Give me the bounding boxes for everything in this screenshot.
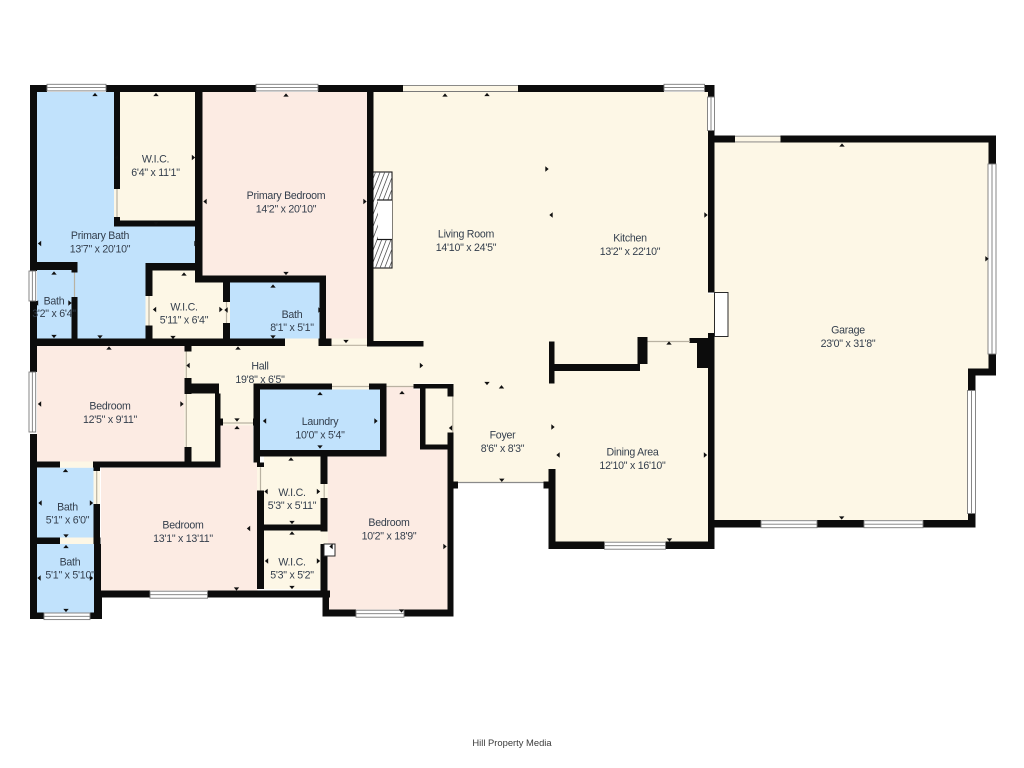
svg-text:13'7" x 20'10": 13'7" x 20'10"	[70, 244, 131, 256]
svg-text:3'2" x 6'4": 3'2" x 6'4"	[32, 308, 76, 320]
svg-text:Bath: Bath	[282, 309, 303, 321]
svg-text:Kitchen: Kitchen	[613, 233, 647, 245]
svg-text:8'6" x 8'3": 8'6" x 8'3"	[481, 443, 525, 455]
svg-text:Bedroom: Bedroom	[162, 520, 204, 532]
svg-text:W.I.C.: W.I.C.	[278, 487, 305, 499]
svg-text:5'1" x 5'10": 5'1" x 5'10"	[45, 570, 95, 582]
svg-text:23'0" x 31'8": 23'0" x 31'8"	[821, 338, 876, 350]
svg-text:Laundry: Laundry	[302, 416, 339, 428]
svg-text:5'11" x 6'4": 5'11" x 6'4"	[160, 315, 209, 327]
svg-text:Primary Bath: Primary Bath	[71, 230, 130, 242]
svg-text:Hill Property Media: Hill Property Media	[472, 737, 552, 748]
svg-text:W.I.C.: W.I.C.	[142, 154, 169, 166]
svg-text:Hall: Hall	[251, 361, 268, 373]
svg-text:8'1" x 5'1": 8'1" x 5'1"	[270, 322, 314, 334]
svg-text:14'10" x 24'5": 14'10" x 24'5"	[436, 242, 497, 254]
svg-text:6'4" x 11'1": 6'4" x 11'1"	[131, 167, 180, 179]
svg-text:W.I.C.: W.I.C.	[170, 302, 197, 314]
svg-text:5'3" x 5'11": 5'3" x 5'11"	[268, 500, 317, 512]
svg-text:W.I.C.: W.I.C.	[278, 557, 305, 569]
svg-text:Primary Bedroom: Primary Bedroom	[247, 190, 326, 202]
svg-text:5'1" x 6'0": 5'1" x 6'0"	[46, 515, 90, 527]
svg-text:Dining Area: Dining Area	[606, 447, 658, 459]
svg-text:5'3" x 5'2": 5'3" x 5'2"	[270, 570, 314, 582]
svg-text:10'0" x 5'4": 10'0" x 5'4"	[295, 430, 345, 442]
svg-text:13'2" x 22'10": 13'2" x 22'10"	[600, 246, 661, 258]
svg-text:12'5" x 9'11": 12'5" x 9'11"	[83, 414, 138, 426]
svg-text:Bath: Bath	[57, 502, 78, 514]
svg-text:Bedroom: Bedroom	[89, 401, 131, 413]
svg-text:14'2" x 20'10": 14'2" x 20'10"	[256, 204, 317, 216]
svg-text:12'10" x 16'10": 12'10" x 16'10"	[599, 460, 666, 472]
svg-text:Bath: Bath	[60, 557, 81, 569]
svg-text:19'8" x 6'5": 19'8" x 6'5"	[235, 374, 285, 386]
svg-text:Bath: Bath	[44, 296, 65, 308]
svg-text:Garage: Garage	[831, 325, 865, 337]
svg-text:Foyer: Foyer	[490, 430, 517, 442]
svg-text:13'1" x 13'11": 13'1" x 13'11"	[153, 533, 213, 545]
svg-text:Bedroom: Bedroom	[368, 517, 410, 529]
svg-text:10'2" x 18'9": 10'2" x 18'9"	[362, 531, 417, 543]
svg-text:Living Room: Living Room	[438, 229, 495, 241]
